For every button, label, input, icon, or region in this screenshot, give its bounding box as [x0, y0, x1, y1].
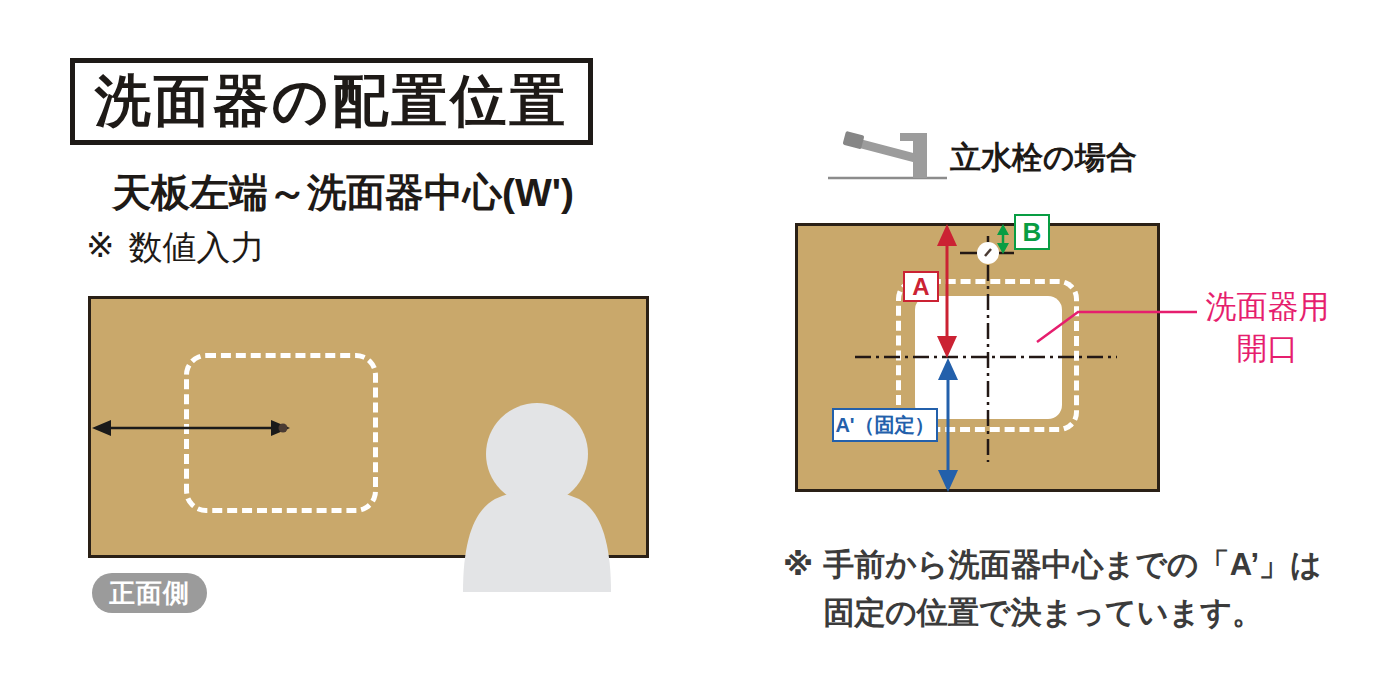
opening-label: 洗面器用 開口 [1185, 286, 1350, 370]
numeric-input-note: ※ 数値入力 [86, 225, 265, 271]
note-marker: ※ [86, 225, 115, 271]
red-dimension-arrow-a [937, 224, 957, 358]
page-title: 洗面器の配置位置 [95, 64, 568, 140]
label-a-fixed: A'（固定） [835, 412, 934, 439]
note-lines: 手前から洗面器中心までの「A’」は 固定の位置で決まっています。 [823, 541, 1322, 637]
faucet-icon [820, 120, 970, 185]
label-a-fixed-box: A'（固定） [832, 408, 938, 442]
fixed-position-note: ※ 手前から洗面器中心までの「A’」は 固定の位置で決まっています。 [783, 541, 1322, 637]
note-line2: 固定の位置で決まっています。 [823, 589, 1322, 637]
page-title-box: 洗面器の配置位置 [70, 58, 593, 145]
dimension-subtitle: 天板左端～洗面器中心(W') [112, 166, 574, 220]
front-side-badge: 正面側 [92, 573, 207, 613]
front-side-label: 正面側 [109, 576, 190, 611]
label-b-box: B [1014, 214, 1050, 250]
opening-label-line2: 開口 [1185, 328, 1350, 370]
label-b: B [1023, 217, 1042, 248]
opening-leader-line [1037, 312, 1197, 342]
person-icon [455, 398, 635, 598]
blue-dimension-arrow-a-fixed [938, 358, 958, 492]
label-a: A [912, 273, 929, 301]
note-text: 数値入力 [129, 225, 265, 271]
diagram-canvas: 洗面器の配置位置 天板左端～洗面器中心(W') ※ 数値入力 正面側 [0, 0, 1400, 674]
green-dimension-arrow-b [997, 224, 1009, 254]
label-a-box: A [903, 271, 939, 302]
opening-label-line1: 洗面器用 [1185, 286, 1350, 328]
basin-center-dot [279, 424, 288, 433]
faucet-case-header: 立水栓の場合 [950, 137, 1137, 179]
note-line1: 手前から洗面器中心までの「A’」は [823, 541, 1322, 589]
note-marker: ※ [783, 541, 813, 637]
dimension-arrow-w [92, 420, 290, 436]
